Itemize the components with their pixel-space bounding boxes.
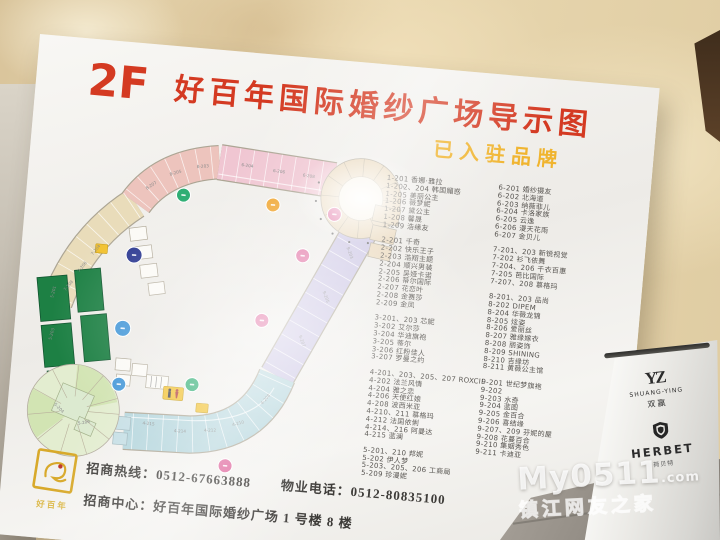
property-number: 0512-80835100 [350, 484, 446, 507]
restroom-icon [163, 386, 184, 401]
round-court-area [23, 361, 123, 461]
center-label: 招商中心： [83, 493, 154, 514]
property-label: 物业电话： [280, 478, 351, 499]
hotline-number: 0512-67663888 [155, 467, 251, 490]
photo-of-mall-directory: 2F 好百年国际婚纱广场导示图 [0, 0, 720, 540]
haobainian-logo-icon [30, 447, 80, 497]
logo-text: 好百年 [25, 497, 80, 514]
center-value: 好百年国际婚纱广场 1 号楼 8 楼 [153, 499, 354, 531]
unit-label: 4-212 [204, 428, 217, 433]
floor-label: 2F [86, 58, 150, 107]
floor-plan-map: 7-2087-2067-2048-2078-2058-2036-2046-206… [14, 119, 407, 497]
unit-label: 4-214 [174, 428, 187, 434]
hotline-label: 招商热线： [86, 461, 157, 482]
restroom-icon [196, 403, 209, 413]
haobainian-logo: 好百年 [25, 447, 84, 513]
watermark: My0511.com 镇江网友之家 [517, 455, 702, 522]
